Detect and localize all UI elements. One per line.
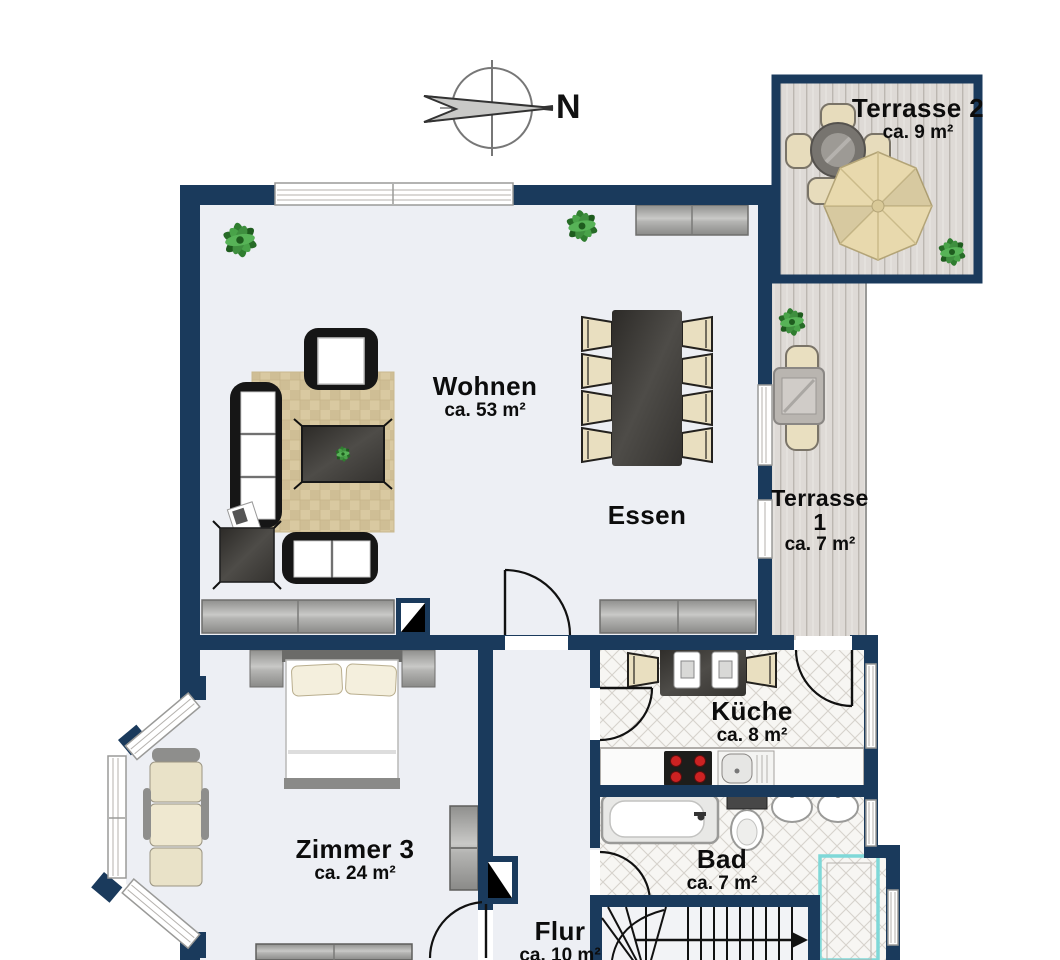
wall-kueche-bad xyxy=(590,785,864,797)
door-wohnen-terrasse xyxy=(758,500,772,558)
toilet xyxy=(727,795,767,850)
stove xyxy=(664,751,712,786)
sideboard-wohnen-right xyxy=(600,600,756,633)
nightstand xyxy=(250,650,283,687)
nightstand xyxy=(402,650,435,687)
terrace-table xyxy=(774,368,824,424)
bed xyxy=(282,650,402,789)
chimney-symbol xyxy=(482,856,518,904)
armchair xyxy=(304,328,378,390)
chimney-symbol xyxy=(396,598,430,637)
sofa-3seat xyxy=(227,382,282,542)
compass-north-label: N xyxy=(556,88,581,127)
window-kueche-right xyxy=(866,664,876,748)
shower xyxy=(820,856,878,960)
dining-table xyxy=(612,310,682,466)
window-wohnen-top xyxy=(275,183,513,205)
wall-left xyxy=(180,185,200,698)
sideboard-bottom xyxy=(202,600,394,633)
lounge-chair xyxy=(143,748,209,886)
dresser xyxy=(450,806,478,890)
compass-icon xyxy=(424,60,553,156)
sideboard-zimmer3 xyxy=(256,944,412,960)
compass-needle xyxy=(424,96,553,122)
floor-plan-drawing xyxy=(0,0,1060,960)
sofa-2seat xyxy=(282,532,378,584)
terrasse2 xyxy=(776,79,978,279)
bathtub xyxy=(602,795,718,843)
side-table xyxy=(213,521,281,589)
coffee-table xyxy=(294,419,392,489)
flur-floor xyxy=(478,635,600,960)
stairs xyxy=(590,895,820,960)
kitchen-sink xyxy=(718,751,774,786)
window-bad-right xyxy=(866,800,876,846)
sideboard-top xyxy=(636,205,748,235)
parasol xyxy=(824,152,932,260)
terrasse1-deck xyxy=(772,283,866,640)
wall-kueche-left xyxy=(590,650,600,688)
kitchen-counter xyxy=(600,748,864,788)
window-shower-right xyxy=(888,890,898,945)
floor-plan: Terrasse 2 ca. 9 m² Wohnen ca. 53 m² Ess… xyxy=(0,0,1060,960)
window-wohnen-terrasse xyxy=(758,385,772,465)
